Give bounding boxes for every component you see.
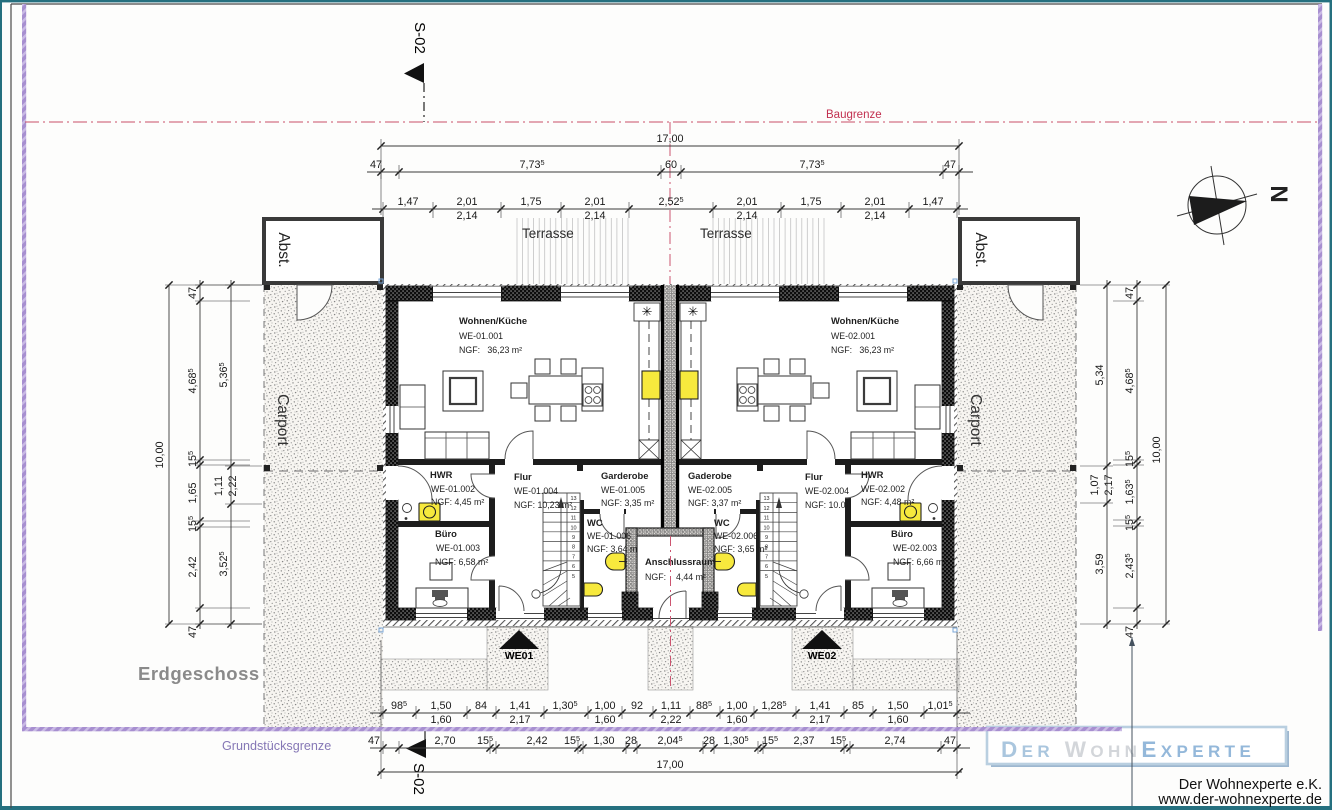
svg-text:1,00: 1,00 [594,700,615,712]
svg-text:1,65: 1,65 [187,482,199,503]
svg-text:10,00: 10,00 [1151,436,1163,463]
svg-text:WE-01.003: WE-01.003 [436,543,480,553]
svg-text:85: 85 [852,700,864,712]
svg-text:11: 11 [571,516,577,522]
svg-text:Terrasse: Terrasse [700,226,752,241]
svg-text:2,17: 2,17 [509,714,530,726]
svg-text:1,60: 1,60 [726,714,747,726]
svg-text:NGF: 10.01: NGF: 10.01 [805,500,851,510]
svg-text:1,75: 1,75 [800,196,821,208]
svg-text:WE01: WE01 [505,650,534,662]
svg-text:6: 6 [765,564,768,570]
svg-text:2,01: 2,01 [584,196,605,208]
svg-text:5: 5 [765,574,768,580]
svg-text:Wohnen/Küche: Wohnen/Küche [831,315,899,326]
svg-text:47: 47 [1124,626,1136,638]
svg-text:NGF: 36,23 m²: NGF: 36,23 m² [459,345,522,355]
svg-text:47: 47 [944,159,956,171]
svg-text:NGF: 10,23 m²: NGF: 10,23 m² [514,500,572,510]
svg-text:WE-02.005: WE-02.005 [688,485,732,495]
svg-text:1,41: 1,41 [509,700,530,712]
svg-text:2,14: 2,14 [736,210,757,222]
svg-text:WE-02.002: WE-02.002 [861,484,905,494]
svg-text:2,17: 2,17 [1103,474,1115,495]
svg-text:17,00: 17,00 [656,759,683,771]
svg-text:NGF: 4,45 m²: NGF: 4,45 m² [431,497,484,507]
svg-text:2,01: 2,01 [736,196,757,208]
svg-text:Wohnen/Küche: Wohnen/Küche [459,315,527,326]
svg-text:HWR: HWR [861,469,884,480]
svg-text:NGF:: NGF: [645,572,666,582]
svg-text:Flur: Flur [514,471,532,482]
svg-text:Garderobe: Garderobe [601,470,648,481]
svg-text:S-02: S-02 [410,763,427,795]
svg-text:2,42: 2,42 [187,556,199,577]
svg-text:2,14: 2,14 [456,210,477,222]
svg-text:Gaderobe: Gaderobe [688,470,732,481]
svg-text:1,50: 1,50 [430,700,451,712]
svg-text:NGF: 36,23 m²: NGF: 36,23 m² [831,345,894,355]
svg-text:5,34: 5,34 [1094,364,1106,385]
svg-text:Büro: Büro [435,528,457,539]
svg-text:1,50: 1,50 [887,700,908,712]
svg-text:2,37: 2,37 [793,735,814,747]
svg-text:10,00: 10,00 [154,441,166,468]
svg-text:1,30: 1,30 [593,735,614,747]
svg-text:Carport: Carport [274,394,291,446]
svg-text:1,11: 1,11 [213,476,225,496]
svg-text:1,60: 1,60 [594,714,615,726]
svg-text:HWR: HWR [430,469,453,480]
svg-text:47: 47 [187,626,199,638]
svg-text:NGF: 3,65 m²: NGF: 3,65 m² [714,544,767,554]
svg-text:WE-01.005: WE-01.005 [601,485,645,495]
svg-text:N: N [1265,185,1292,202]
svg-text:WE-02.003: WE-02.003 [893,543,937,553]
svg-text:10: 10 [763,525,769,531]
svg-text:6: 6 [572,564,575,570]
svg-text:9: 9 [765,535,768,541]
svg-text:NGF: 6,66 m²: NGF: 6,66 m² [893,557,946,567]
svg-text:8: 8 [572,545,575,551]
svg-text:7: 7 [765,554,768,560]
svg-text:WE-01.001: WE-01.001 [459,331,503,341]
svg-text:NGF: 3,37 m²: NGF: 3,37 m² [688,498,741,508]
svg-text:28: 28 [625,735,637,747]
svg-text:WE-02.004: WE-02.004 [805,486,849,496]
svg-text:WE-02.001: WE-02.001 [831,331,875,341]
svg-text:WC: WC [587,517,603,528]
svg-text:WE-01.006: WE-01.006 [587,531,631,541]
svg-text:WE-02.006: WE-02.006 [714,531,758,541]
svg-text:47: 47 [187,287,199,299]
svg-text:NGF: 3,35 m²: NGF: 3,35 m² [601,498,654,508]
svg-text:2,70: 2,70 [434,735,455,747]
svg-text:3,59: 3,59 [1094,553,1106,574]
svg-text:2,42: 2,42 [526,735,547,747]
svg-text:2,01: 2,01 [456,196,477,208]
svg-text:Anschlussraum: Anschlussraum [645,556,715,567]
svg-text:✳: ✳ [688,304,699,319]
svg-text:13: 13 [763,496,769,502]
svg-text:2,14: 2,14 [864,210,885,222]
svg-text:Abst.: Abst. [275,232,292,267]
svg-text:1,60: 1,60 [887,714,908,726]
svg-text:Erdgeschoss: Erdgeschoss [138,663,260,684]
svg-text:2,14: 2,14 [584,210,605,222]
svg-text:1,60: 1,60 [430,714,451,726]
svg-text:1,47: 1,47 [397,196,418,208]
svg-text:60: 60 [665,159,677,171]
svg-text:Terrasse: Terrasse [522,226,574,241]
svg-text:Büro: Büro [891,528,913,539]
svg-text:47: 47 [370,159,382,171]
svg-text:7: 7 [572,554,575,560]
svg-text:WE02: WE02 [808,650,837,662]
svg-text:2,22: 2,22 [227,475,239,496]
svg-text:2,74: 2,74 [884,735,905,747]
svg-text:WE-01.002: WE-01.002 [431,484,475,494]
svg-text:1,07: 1,07 [1089,474,1101,495]
svg-text:Der Wohnexperte e.K.: Der Wohnexperte e.K. [1179,777,1322,793]
svg-text:1,11: 1,11 [661,700,681,712]
svg-text:WC: WC [714,517,730,528]
svg-text:17,00: 17,00 [656,133,683,145]
svg-text:84: 84 [475,700,487,712]
svg-text:Abst.: Abst. [972,232,989,267]
svg-text:28: 28 [703,735,715,747]
svg-text:2,01: 2,01 [864,196,885,208]
svg-text:NGF: 3,64 m: NGF: 3,64 m [587,544,637,554]
svg-text:2,17: 2,17 [809,714,830,726]
svg-text:www.der-wohnexperte.de: www.der-wohnexperte.de [1157,792,1322,808]
svg-text:2,22: 2,22 [660,714,681,726]
svg-text:S-02: S-02 [411,22,428,54]
svg-text:1,00: 1,00 [726,700,747,712]
svg-text:Grundstücksgrenze: Grundstücksgrenze [222,739,331,753]
svg-text:10: 10 [570,525,576,531]
svg-text:1,41: 1,41 [809,700,830,712]
svg-text:1,47: 1,47 [922,196,943,208]
svg-text:Flur: Flur [805,471,823,482]
svg-text:92: 92 [631,700,643,712]
svg-text:WE-01.004: WE-01.004 [514,486,558,496]
svg-text:NGF: 6,58 m²: NGF: 6,58 m² [435,557,488,567]
svg-text:12: 12 [763,506,769,512]
svg-text:NGF: 4,48 m²: NGF: 4,48 m² [861,497,914,507]
svg-text:47: 47 [368,735,380,747]
svg-text:Carport: Carport [967,394,984,446]
svg-text:9: 9 [572,535,575,541]
svg-text:1,75: 1,75 [520,196,541,208]
svg-text:11: 11 [764,516,770,522]
svg-text:Baugrenze: Baugrenze [826,109,882,121]
svg-text:4,44 m²: 4,44 m² [676,572,706,582]
svg-text:47: 47 [944,735,956,747]
svg-text:✳: ✳ [642,304,653,319]
svg-text:47: 47 [1124,287,1136,299]
svg-text:5: 5 [572,574,575,580]
